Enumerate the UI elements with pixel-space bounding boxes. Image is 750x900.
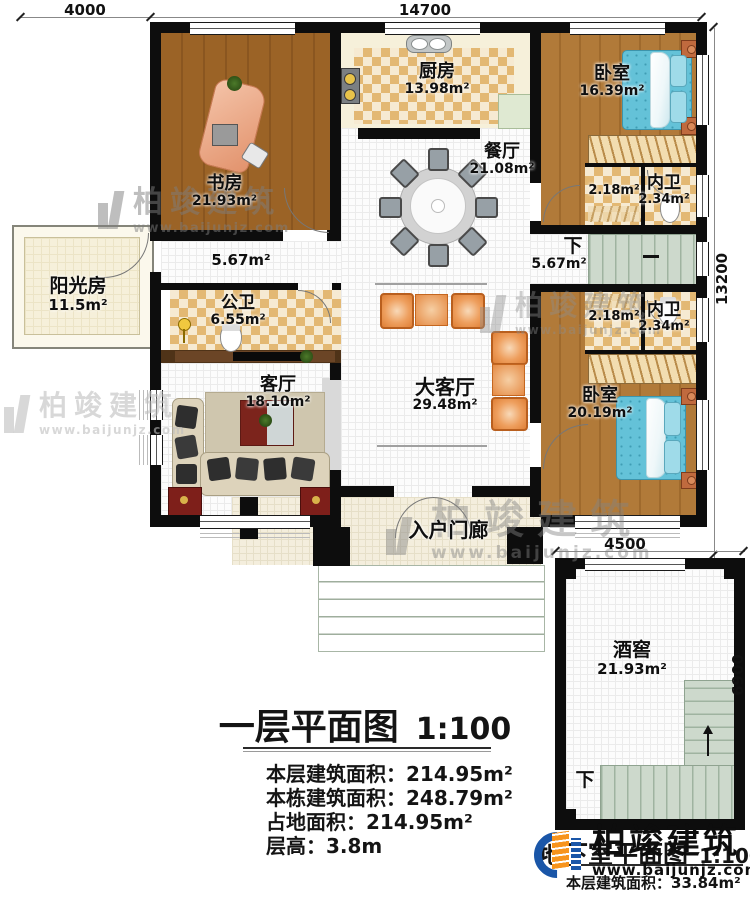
bed-pillow (664, 402, 681, 436)
cellar-stair-arrow-head (703, 725, 713, 734)
kitchen-cabinet (498, 94, 532, 129)
stove-burner (344, 89, 356, 101)
study-name: 书房 (162, 174, 287, 194)
living-left-window2 (150, 435, 163, 465)
bedroom1-side-window (696, 55, 709, 125)
window-sill (139, 435, 148, 465)
sunroom-name: 阳光房 (22, 276, 134, 297)
pubbath-name: 公卫 (196, 294, 280, 313)
bed-pillow (670, 55, 687, 87)
room-label-living: 客厅 18.10m² (217, 375, 339, 411)
tv-screen (233, 352, 303, 361)
kitchen-area: 13.98m² (377, 82, 497, 98)
dimension-tick (697, 12, 706, 21)
porch-name: 入户门廊 (376, 519, 521, 541)
stair-direction-mark (643, 255, 659, 258)
stat-footprint-area: 占地面积：214.95m² (266, 810, 513, 834)
bedroom1-area: 16.39m² (552, 84, 672, 100)
dining-area: 21.08m² (442, 162, 562, 178)
stair-down-label: 下 (560, 236, 586, 257)
brand-logo-text: 柏竣建筑 www.baijunjz.com (592, 824, 750, 879)
brand-name: 柏竣建筑 (592, 824, 750, 861)
cellar-area: 21.93m² (572, 661, 692, 678)
bedroom2-area: 20.19m² (545, 406, 655, 422)
cellar-pilaster (566, 809, 576, 819)
dining-name: 餐厅 (442, 142, 562, 162)
room-label-ensuite1: 内卫 2.34m² (628, 174, 700, 208)
dimension-4500: 4500 (585, 535, 665, 553)
ensuite2-name: 内卫 (628, 301, 700, 320)
wall-pubbath-top-stub (332, 283, 341, 290)
stairhall-area-label: 5.67m² (527, 257, 591, 273)
wall-study-bottom-stub (327, 230, 341, 241)
plan-title-row: 一层平面图 1:100 (200, 698, 530, 750)
bedroom2-name: 卧室 (545, 386, 655, 406)
sofa-cushion (176, 464, 197, 484)
stairhall-area: 5.67m² (527, 257, 591, 273)
room-label-cellar: 酒窖 21.93m² (572, 640, 692, 678)
study-window (190, 22, 295, 35)
wall-porch-left (341, 486, 394, 497)
stat-floor-height: 层高：3.8m (266, 834, 513, 858)
hall-armchair (380, 293, 414, 329)
pubbath-lamp-stem (183, 329, 185, 343)
room-label-porch: 入户门廊 (376, 519, 521, 541)
cellar-name: 酒窖 (572, 640, 692, 661)
plan-scale: 1:100 (416, 712, 512, 747)
wall-study-right (330, 22, 341, 241)
brand-logo: 柏竣建筑 www.baijunjz.com (534, 824, 750, 884)
plan-title: 一层平面图 (219, 707, 399, 748)
stat-building-area: 本栋建筑面积：248.79m² (266, 786, 513, 810)
bedroom1-name: 卧室 (552, 64, 672, 84)
room-label-dining: 餐厅 21.08m² (442, 142, 562, 178)
wall-living-right-lower (330, 470, 341, 517)
wall-closet2-bottom (585, 350, 696, 354)
cellar-pilaster (566, 569, 576, 579)
dining-chair (475, 197, 498, 218)
porch-steps (318, 565, 545, 652)
hall-armchair (451, 293, 485, 329)
brand-logo-icon (534, 824, 588, 884)
cellar-stairs-lower (600, 765, 736, 821)
dimension-tick (739, 546, 748, 555)
end-table-detail (312, 496, 320, 504)
bed-pillow (670, 91, 687, 123)
sofa-cushion (235, 457, 259, 481)
title-underline (243, 747, 491, 749)
dimension-4000: 4000 (50, 1, 120, 19)
cellar-stair-arrow-line (707, 732, 709, 756)
dining-table-center (431, 199, 445, 213)
watermark-logo-icon (2, 392, 32, 436)
living-area: 18.10m² (217, 395, 339, 411)
dining-chair (428, 244, 449, 267)
cellar-down-label: 下 (572, 770, 598, 791)
wall-pubbath-top (161, 283, 298, 290)
hallway-area: 5.67m² (205, 252, 277, 269)
sofa-cushion (290, 456, 315, 481)
living-left-window1 (150, 390, 163, 420)
dimension-14700: 14700 (390, 1, 460, 19)
room-label-pubbath: 公卫 6.55m² (196, 294, 280, 329)
cellar-wall-left (555, 558, 566, 830)
hall-side-table (415, 294, 448, 326)
wall-kitchen-bottom (358, 128, 480, 139)
porch-pillar-left (313, 527, 350, 566)
tv-plant (300, 350, 313, 363)
ensuite1-name: 内卫 (628, 174, 700, 193)
brand-url: www.baijunjz.com (592, 861, 750, 879)
wall-stair-top (530, 225, 707, 234)
room-label-kitchen: 厨房 13.98m² (377, 62, 497, 98)
main-stairs (588, 234, 698, 286)
kitchen-name: 厨房 (377, 62, 497, 82)
study-plant (227, 76, 242, 91)
room-label-bedroom1: 卧室 16.39m² (552, 64, 672, 100)
room-label-ensuite2: 内卫 2.34m² (628, 301, 700, 335)
room-label-study: 书房 21.93m² (162, 174, 287, 210)
bed-pillow (664, 440, 681, 474)
sofa-cushion (174, 434, 199, 459)
stove-burner (344, 73, 356, 85)
title-underline-thin (243, 751, 491, 752)
bedroom1-window (570, 22, 665, 35)
dining-chair (379, 197, 402, 218)
sink-basin (411, 38, 428, 50)
coffee-table-plant (259, 414, 272, 427)
stair-down-text: 下 (560, 236, 586, 257)
pubbath-area: 6.55m² (196, 313, 280, 329)
wall-left-upper (150, 22, 161, 235)
study-computer (212, 124, 238, 146)
room-label-sunroom: 阳光房 11.5m² (22, 276, 134, 314)
wall-right-column-mid (530, 292, 541, 423)
logo-building-blue (571, 838, 581, 870)
living-name: 客厅 (217, 375, 339, 395)
study-area: 21.93m² (162, 194, 287, 210)
living-bottom-window (200, 515, 310, 529)
sink-basin (429, 38, 446, 50)
sofa-cushion (263, 457, 287, 481)
sofa-cushion (207, 457, 232, 482)
room-label-bedroom2: 卧室 20.19m² (545, 386, 655, 422)
plan-stats: 本层建筑面积：214.95m² 本栋建筑面积：248.79m² 占地面积：214… (266, 762, 513, 858)
bedroom2-bottom-window (575, 515, 680, 529)
window-sill (139, 390, 148, 420)
closet1-rack (588, 206, 641, 222)
stair-window (696, 242, 709, 276)
hall-armchair (491, 331, 528, 365)
cellar-pilaster (724, 569, 734, 579)
dimension-line-top (20, 17, 702, 18)
dimension-13200: 13200 (713, 249, 731, 309)
ensuite2-area: 2.34m² (628, 320, 700, 335)
bedroom2-side-window (696, 400, 709, 470)
bedroom2-wardrobe (588, 354, 698, 384)
stat-floor-area: 本层建筑面积：214.95m² (266, 762, 513, 786)
ensuite1-area: 2.34m² (628, 193, 700, 208)
bedroom1-wardrobe (588, 135, 698, 165)
cellar-down-text: 下 (572, 770, 598, 791)
hallway-area-label: 5.67m² (205, 252, 277, 269)
hall-divider-line (377, 445, 487, 447)
wall-study-bottom (150, 230, 283, 241)
sofa-cushion (175, 405, 199, 430)
hall-divider-line (375, 283, 487, 285)
floorplan-canvas: 4000 14700 13200 4500 6900 (0, 0, 750, 900)
dimension-6900: 6900 (729, 645, 747, 705)
greathall-area: 29.48m² (384, 398, 506, 414)
room-label-greathall: 大客厅 29.48m² (384, 376, 506, 414)
greathall-name: 大客厅 (384, 376, 506, 398)
end-table-detail (180, 496, 188, 504)
cellar-window (585, 558, 685, 571)
kitchen-window (385, 22, 480, 35)
sunroom-area: 11.5m² (22, 297, 134, 314)
logo-building-orange (552, 831, 569, 869)
wall-porch-right (472, 486, 541, 497)
